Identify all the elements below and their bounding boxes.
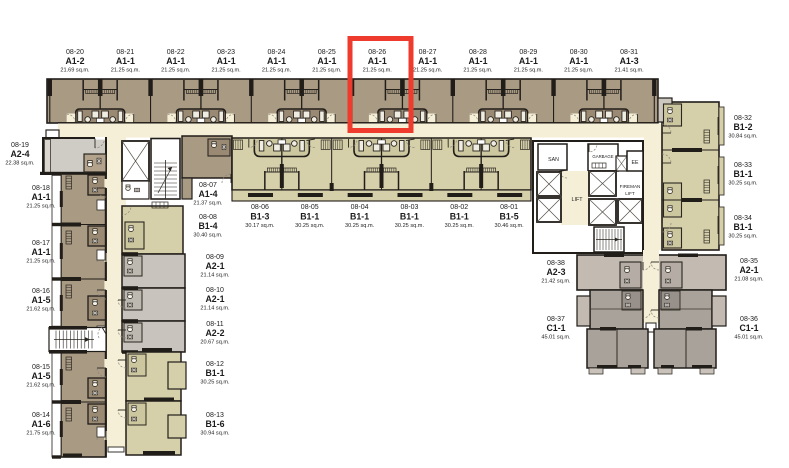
svg-text:B1-1: B1-1 (350, 212, 369, 222)
svg-text:21.25 sq.m.: 21.25 sq.m. (262, 68, 292, 74)
svg-text:30.25 sq.m.: 30.25 sq.m. (200, 380, 230, 386)
svg-text:A1-1: A1-1 (217, 56, 236, 66)
svg-text:08-28: 08-28 (469, 49, 487, 56)
svg-text:B1-1: B1-1 (733, 222, 752, 232)
svg-text:A1-2: A1-2 (65, 56, 84, 66)
svg-text:21.41 sq.m.: 21.41 sq.m. (614, 68, 644, 74)
svg-text:LIFT: LIFT (571, 197, 583, 203)
svg-text:08-11: 08-11 (206, 321, 223, 328)
svg-text:A1-1: A1-1 (31, 247, 50, 257)
svg-text:08-14: 08-14 (32, 412, 50, 419)
svg-text:22.38 sq.m.: 22.38 sq.m. (5, 161, 35, 167)
svg-text:30.25 sq.m.: 30.25 sq.m. (295, 223, 325, 229)
svg-text:21.62 sq.m.: 21.62 sq.m. (26, 383, 56, 389)
svg-text:A1-3: A1-3 (620, 56, 639, 66)
svg-text:EE: EE (632, 160, 639, 166)
svg-text:08-10: 08-10 (206, 287, 224, 294)
svg-text:08-32: 08-32 (734, 115, 752, 122)
svg-text:08-01: 08-01 (500, 204, 518, 211)
svg-text:30.84 sq.m.: 30.84 sq.m. (728, 134, 758, 140)
svg-text:A1-1: A1-1 (31, 192, 50, 202)
svg-text:08-04: 08-04 (351, 204, 369, 211)
svg-text:B1-1: B1-1 (733, 169, 752, 179)
svg-text:A2-2: A2-2 (205, 328, 224, 338)
svg-text:08-25: 08-25 (318, 49, 336, 56)
svg-text:21.25 sq.m.: 21.25 sq.m. (26, 259, 56, 265)
svg-text:B1-1: B1-1 (400, 212, 419, 222)
svg-text:GARBAGE: GARBAGE (592, 154, 613, 159)
svg-text:30.25 sq.m.: 30.25 sq.m. (728, 181, 758, 187)
svg-text:A1-5: A1-5 (31, 295, 50, 305)
svg-text:08-06: 08-06 (251, 204, 269, 211)
svg-text:08-21: 08-21 (116, 49, 134, 56)
svg-text:21.25 sq.m.: 21.25 sq.m. (26, 204, 56, 210)
svg-text:B1-1: B1-1 (450, 212, 469, 222)
svg-text:30.17 sq.m.: 30.17 sq.m. (245, 223, 275, 229)
svg-text:21.25 sq.m.: 21.25 sq.m. (111, 68, 141, 74)
svg-text:08-30: 08-30 (570, 49, 588, 56)
svg-text:30.40 sq.m.: 30.40 sq.m. (193, 233, 223, 239)
svg-text:30.46 sq.m.: 30.46 sq.m. (494, 223, 524, 229)
svg-text:A2-1: A2-1 (205, 261, 224, 271)
svg-text:B1-6: B1-6 (205, 419, 224, 429)
svg-text:08-26: 08-26 (368, 49, 386, 56)
svg-text:21.25 sq.m.: 21.25 sq.m. (363, 68, 393, 74)
svg-text:A1-1: A1-1 (166, 56, 185, 66)
svg-text:08-36: 08-36 (740, 316, 758, 323)
svg-text:21.75 sq.m.: 21.75 sq.m. (26, 431, 56, 437)
svg-text:21.37 sq.m.: 21.37 sq.m. (193, 201, 223, 207)
svg-text:SAN: SAN (548, 157, 559, 163)
svg-text:21.62 sq.m.: 21.62 sq.m. (26, 307, 56, 313)
svg-text:21.25 sq.m.: 21.25 sq.m. (413, 68, 443, 74)
svg-text:08-27: 08-27 (419, 49, 437, 56)
svg-text:30.94 sq.m.: 30.94 sq.m. (200, 431, 230, 437)
svg-text:A1-1: A1-1 (569, 56, 588, 66)
svg-text:A2-1: A2-1 (205, 294, 224, 304)
svg-text:A1-4: A1-4 (198, 189, 217, 199)
svg-text:LIFT: LIFT (625, 191, 635, 196)
svg-text:A1-1: A1-1 (418, 56, 437, 66)
svg-text:08-38: 08-38 (547, 260, 565, 267)
svg-text:A1-1: A1-1 (468, 56, 487, 66)
svg-text:21.14 sq.m.: 21.14 sq.m. (200, 306, 230, 312)
svg-text:21.25 sq.m.: 21.25 sq.m. (564, 68, 594, 74)
svg-text:08-12: 08-12 (206, 361, 224, 368)
svg-text:A2-4: A2-4 (10, 149, 29, 159)
svg-text:C1-1: C1-1 (546, 323, 565, 333)
svg-text:A2-3: A2-3 (546, 267, 565, 277)
svg-text:08-08: 08-08 (199, 214, 217, 221)
svg-text:08-02: 08-02 (450, 204, 468, 211)
svg-text:C1-1: C1-1 (739, 323, 758, 333)
svg-text:08-33: 08-33 (734, 162, 752, 169)
svg-text:08-37: 08-37 (547, 316, 565, 323)
svg-text:21.25 sq.m.: 21.25 sq.m. (463, 68, 493, 74)
svg-text:08-07: 08-07 (199, 182, 217, 189)
svg-text:A1-1: A1-1 (317, 56, 336, 66)
svg-text:A1-5: A1-5 (31, 371, 50, 381)
svg-text:B1-4: B1-4 (198, 221, 217, 231)
svg-text:08-17: 08-17 (32, 240, 50, 247)
svg-text:08-23: 08-23 (217, 49, 235, 56)
svg-text:45.01 sq.m.: 45.01 sq.m. (541, 335, 571, 341)
svg-text:B1-5: B1-5 (500, 212, 519, 222)
svg-text:08-13: 08-13 (206, 412, 224, 419)
svg-text:08-24: 08-24 (268, 49, 286, 56)
svg-text:08-35: 08-35 (740, 258, 758, 265)
svg-text:21.08 sq.m.: 21.08 sq.m. (734, 277, 764, 283)
svg-text:30.25 sq.m.: 30.25 sq.m. (395, 223, 425, 229)
svg-text:21.42 sq.m.: 21.42 sq.m. (541, 279, 571, 285)
svg-text:21.25 sq.m.: 21.25 sq.m. (312, 68, 342, 74)
svg-text:30.25 sq.m.: 30.25 sq.m. (728, 234, 758, 240)
svg-text:08-22: 08-22 (167, 49, 185, 56)
svg-text:30.25 sq.m.: 30.25 sq.m. (445, 223, 475, 229)
svg-text:A1-1: A1-1 (368, 56, 387, 66)
svg-text:A2-1: A2-1 (739, 265, 758, 275)
svg-text:A1-1: A1-1 (267, 56, 286, 66)
svg-text:A1-6: A1-6 (31, 419, 50, 429)
svg-text:B1-1: B1-1 (205, 368, 224, 378)
svg-text:08-05: 08-05 (301, 204, 319, 211)
svg-text:21.14 sq.m.: 21.14 sq.m. (200, 273, 230, 279)
svg-text:A1-1: A1-1 (116, 56, 135, 66)
svg-text:45.01 sq.m.: 45.01 sq.m. (734, 335, 764, 341)
svg-text:A1-1: A1-1 (519, 56, 538, 66)
svg-text:FIREMAN: FIREMAN (620, 184, 641, 189)
svg-text:08-31: 08-31 (620, 49, 638, 56)
svg-text:08-16: 08-16 (32, 288, 50, 295)
svg-text:08-15: 08-15 (32, 364, 50, 371)
svg-text:08-29: 08-29 (519, 49, 537, 56)
svg-text:08-09: 08-09 (206, 254, 224, 261)
svg-text:30.25 sq.m.: 30.25 sq.m. (345, 223, 375, 229)
svg-text:08-18: 08-18 (32, 185, 50, 192)
svg-text:21.69 sq.m.: 21.69 sq.m. (60, 68, 90, 74)
svg-text:21.25 sq.m.: 21.25 sq.m. (161, 68, 191, 74)
svg-text:B1-2: B1-2 (733, 122, 752, 132)
svg-text:08-03: 08-03 (400, 204, 418, 211)
svg-text:20.67 sq.m.: 20.67 sq.m. (200, 340, 230, 346)
svg-text:B1-1: B1-1 (300, 212, 319, 222)
svg-text:08-19: 08-19 (11, 142, 29, 149)
svg-text:08-20: 08-20 (66, 49, 84, 56)
svg-text:21.25 sq.m.: 21.25 sq.m. (211, 68, 241, 74)
svg-text:B1-3: B1-3 (250, 212, 269, 222)
svg-text:21.25 sq.m.: 21.25 sq.m. (514, 68, 544, 74)
svg-text:08-34: 08-34 (734, 215, 752, 222)
